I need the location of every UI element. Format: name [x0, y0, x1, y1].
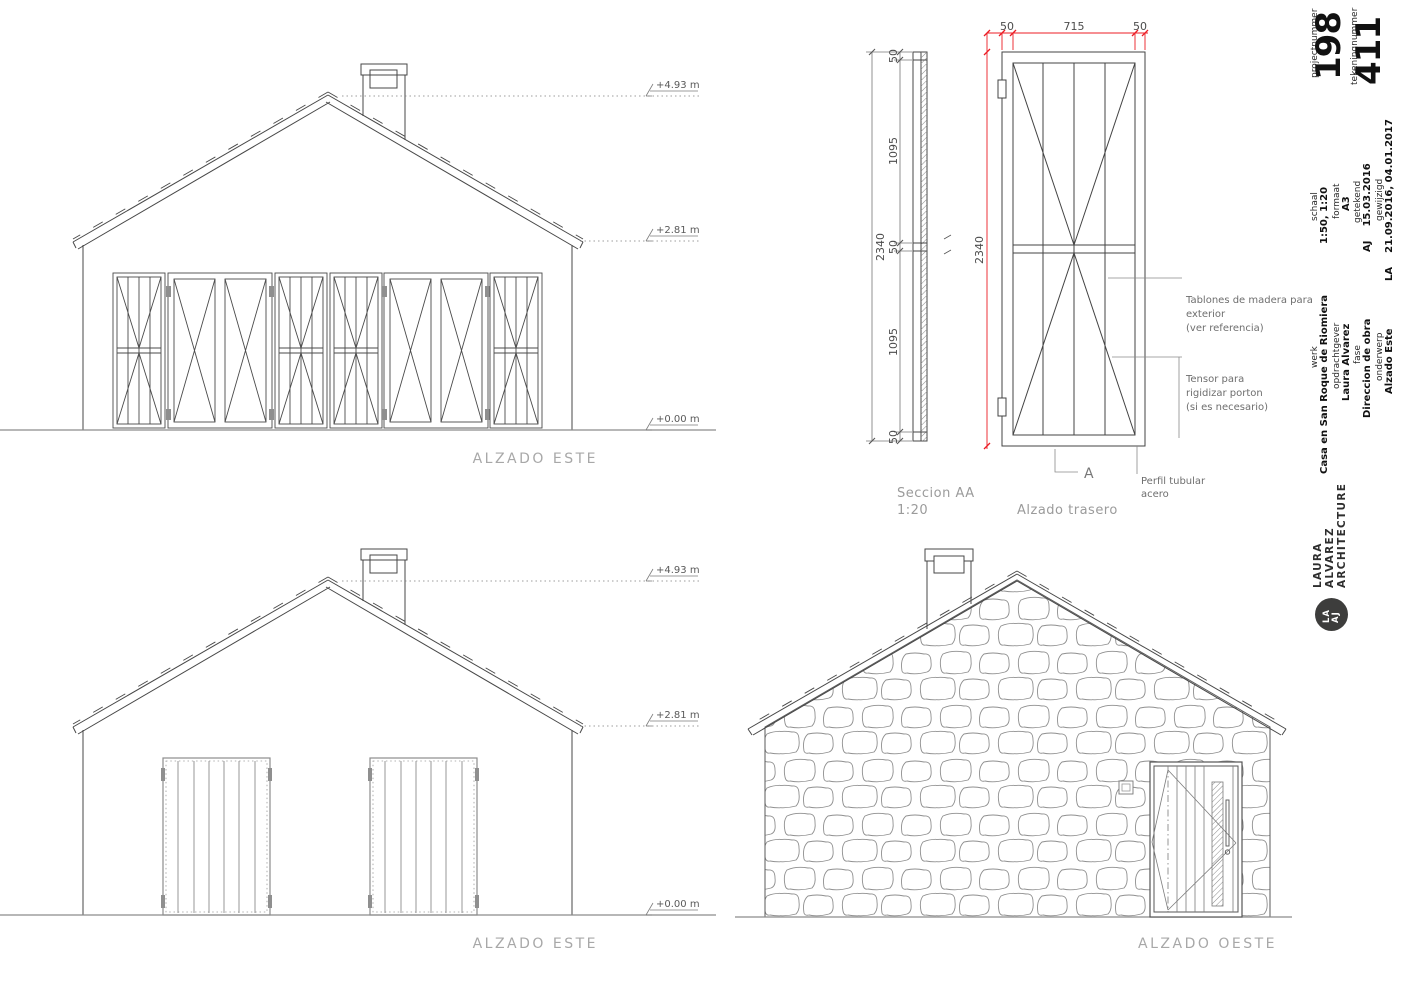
- firm-name-line3: ARCHITECTURE: [1337, 483, 1348, 588]
- titleblock: projectnummer 198 tekeningnummer 411 sch…: [0, 0, 1415, 1000]
- werk-value: Casa en San Roque de Riomiera: [1320, 295, 1330, 474]
- opdrachtgever-value: Laura Alvarez: [1342, 324, 1352, 401]
- firm-name-line2: ALVAREZ: [1325, 527, 1336, 588]
- gewijzigd-initials: LA: [1384, 267, 1395, 281]
- gewijzigd-dates: 21.09.2016, 04.01.2017: [1384, 119, 1395, 253]
- firm-logo-monogram: LA AJ: [1323, 609, 1340, 623]
- getekend-date: 15.03.2016: [1362, 163, 1373, 226]
- onderwerp-value: Alzado Este: [1385, 328, 1395, 394]
- getekend-value: AJ15.03.2016: [1363, 163, 1373, 252]
- tekeningnummer-value: 411: [1356, 17, 1383, 85]
- projectnummer-value: 198: [1316, 12, 1343, 80]
- getekend-initials: AJ: [1362, 241, 1373, 252]
- firm-name-line1: LAURA: [1313, 542, 1324, 588]
- firm-logo-monogram-bottom: AJ: [1332, 609, 1341, 623]
- gewijzigd-value: LA21.09.2016, 04.01.2017: [1385, 119, 1395, 281]
- schaal-value: 1:50, 1:20: [1320, 187, 1330, 244]
- formaat-value: A3: [1342, 196, 1352, 211]
- fase-value: Direccion de obra: [1363, 319, 1373, 418]
